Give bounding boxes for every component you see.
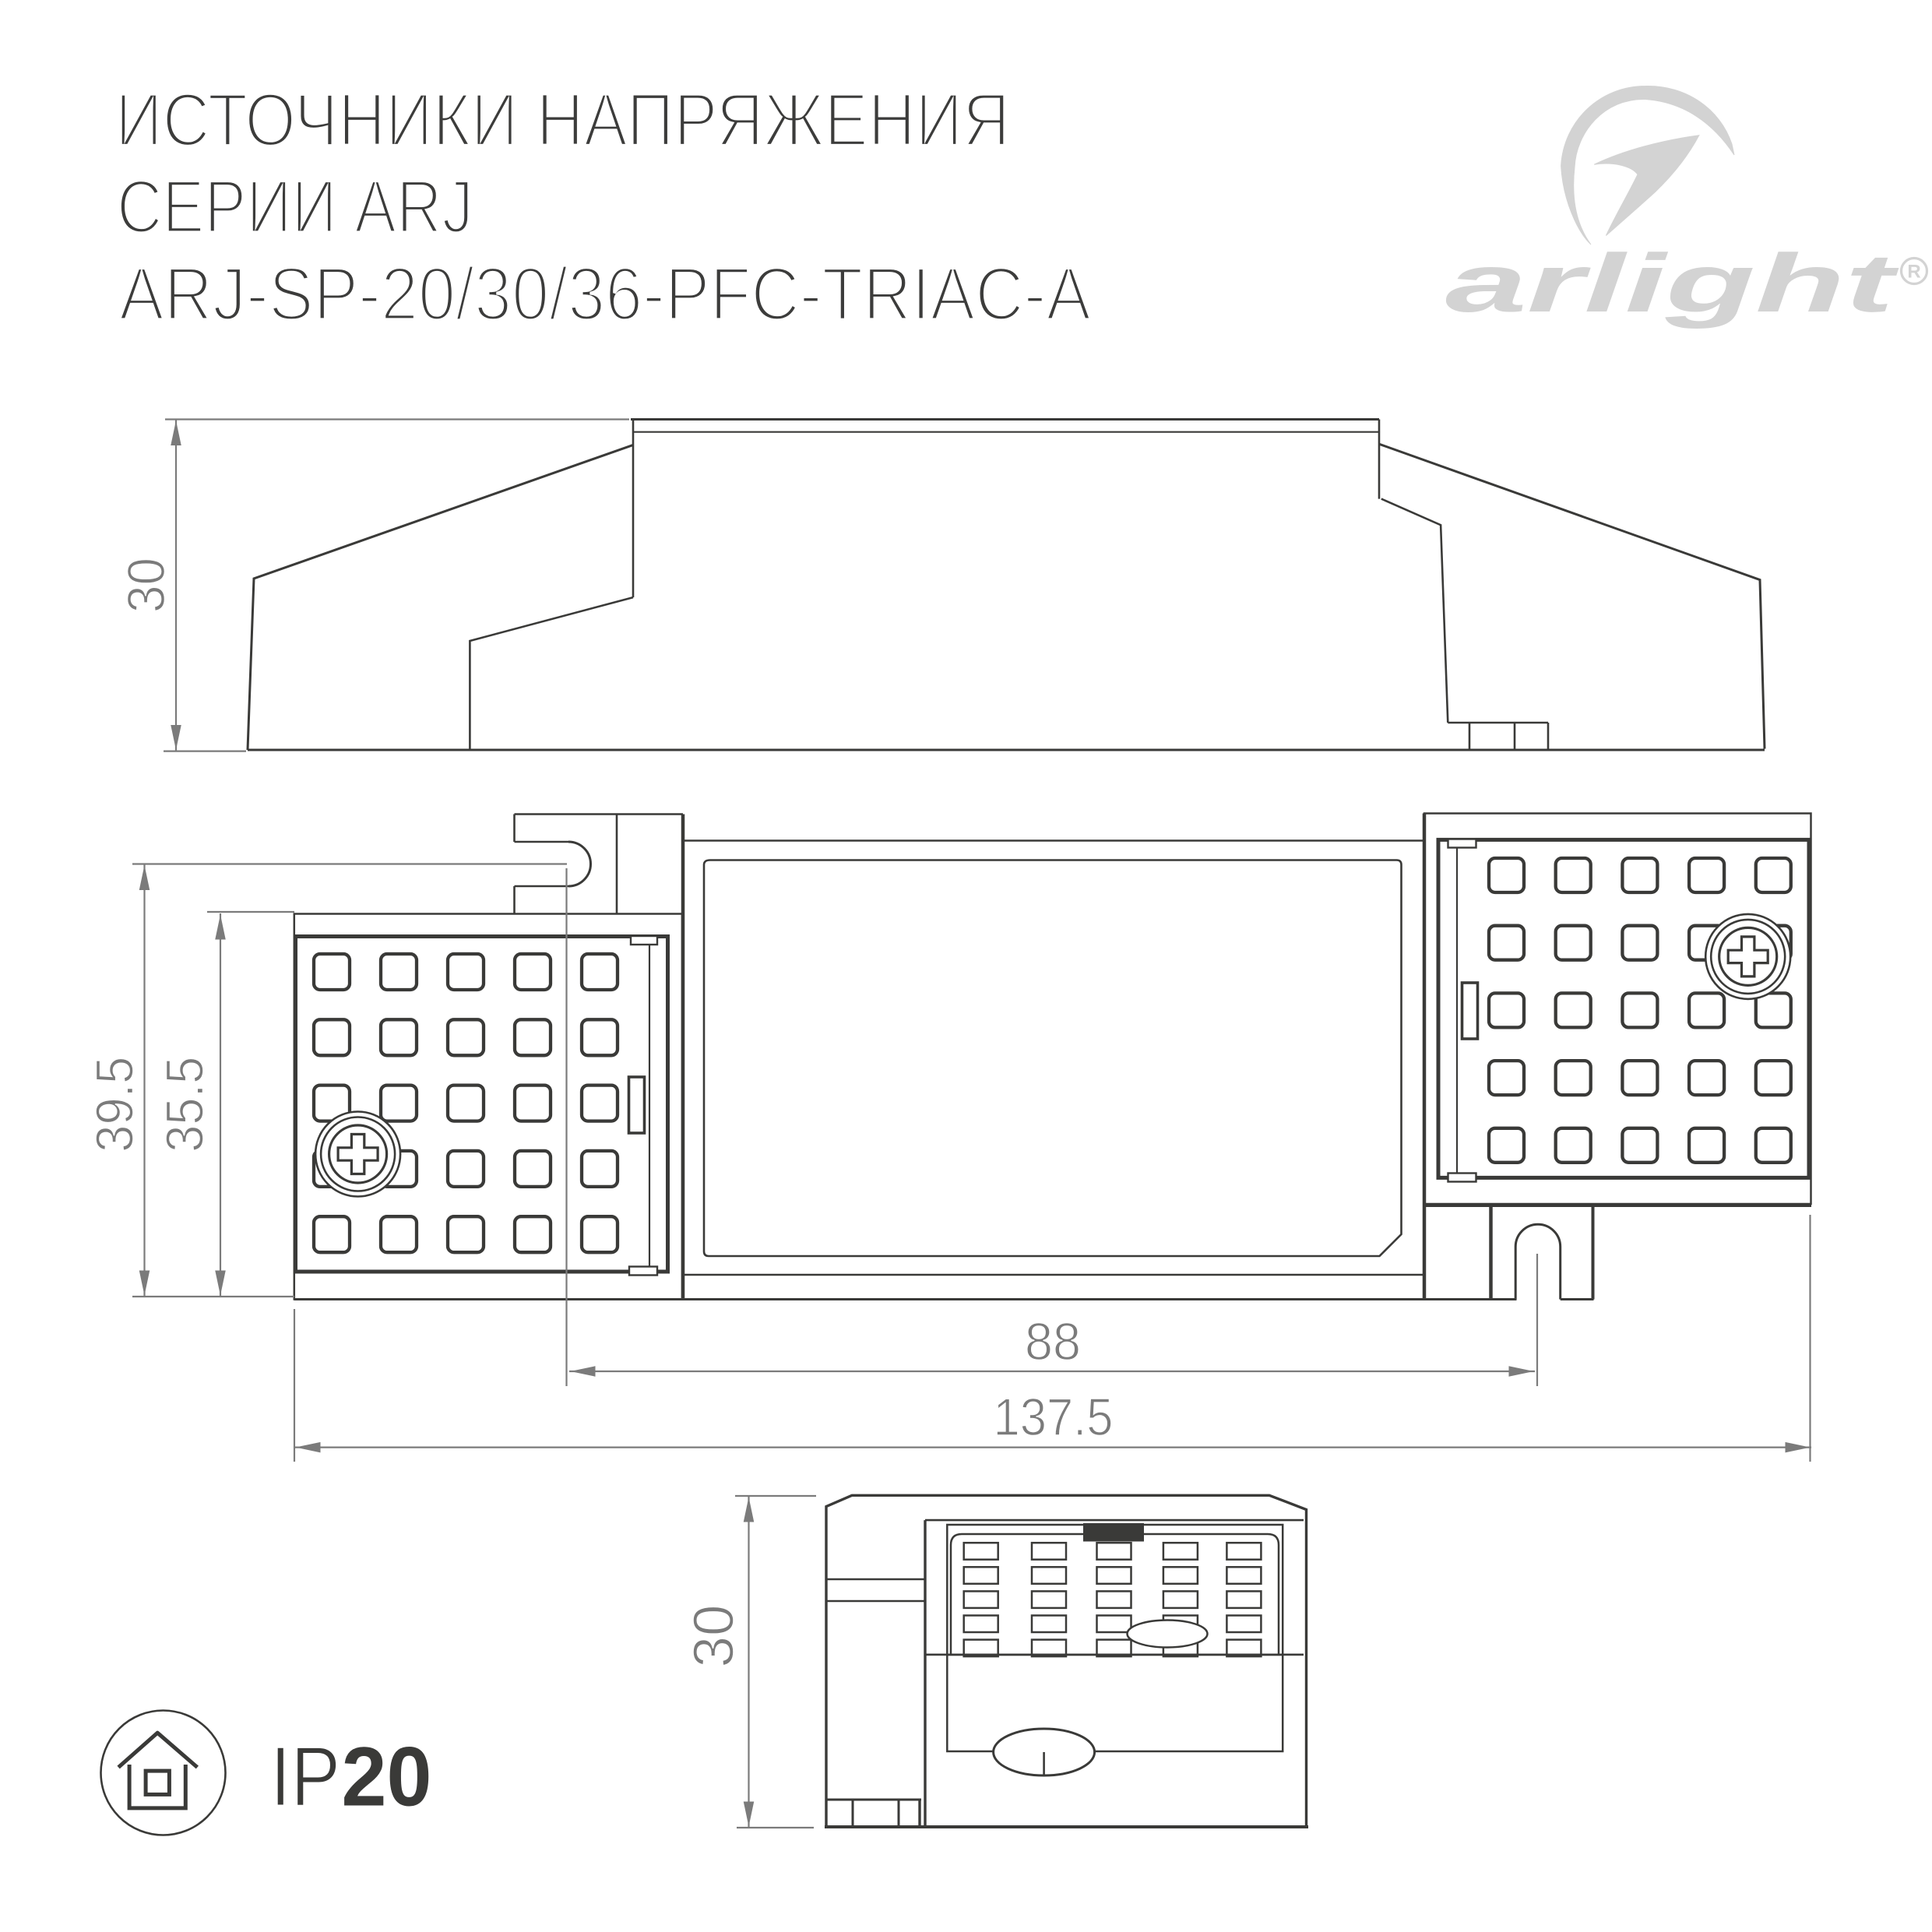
svg-text:88: 88 [1025, 1312, 1081, 1371]
svg-text:ИСТОЧНИКИ НАПРЯЖЕНИЯ: ИСТОЧНИКИ НАПРЯЖЕНИЯ [115, 79, 1010, 162]
svg-text:30: 30 [117, 558, 176, 613]
svg-text:СЕРИИ ARJ: СЕРИИ ARJ [117, 166, 473, 249]
svg-text:20: 20 [342, 1729, 432, 1823]
svg-text:arlight: arlight [1445, 238, 1899, 329]
svg-text:35.5: 35.5 [156, 1057, 215, 1153]
svg-text:30: 30 [683, 1605, 746, 1668]
svg-text:IP: IP [270, 1729, 340, 1823]
svg-text:ARJ-SP-20/30/36-PFC-TRIAC-A: ARJ-SP-20/30/36-PFC-TRIAC-A [119, 252, 1092, 336]
svg-text:R: R [1907, 261, 1920, 282]
svg-text:137.5: 137.5 [994, 1388, 1114, 1447]
svg-text:39.5: 39.5 [86, 1057, 145, 1153]
